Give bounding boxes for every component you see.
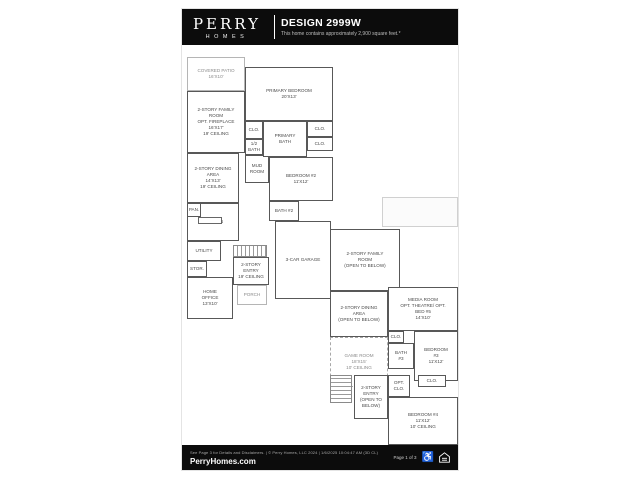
brand-sub: HOMES xyxy=(186,34,268,40)
website-link[interactable]: PerryHomes.com xyxy=(190,457,378,466)
brand-name: PERRY xyxy=(186,15,268,33)
bedroom-3-label: BEDROOM #3 11'x12' xyxy=(423,346,449,367)
screenshot-canvas: { "header": { "brand": { "name": "PERRY"… xyxy=(0,0,640,480)
design-subtitle: This home contains approximately 2,900 s… xyxy=(281,31,401,37)
disclaimer-text: See Page 3 for Details and Disclaimers. … xyxy=(190,450,378,455)
header-bar: PERRY HOMES DESIGN 2999W This home conta… xyxy=(182,9,458,45)
roof-area xyxy=(382,197,458,227)
family-room-open-label: 2-STORY FAMILY ROOM (OPEN TO BELOW) xyxy=(343,250,386,271)
bath-3-label: BATH #3 xyxy=(394,349,408,363)
header-divider xyxy=(274,15,275,39)
bedroom-4-label: BEDROOM #4 11'x12' 10' Ceiling xyxy=(407,411,439,432)
second-floor-plan: 2-STORY FAMILY ROOM (OPEN TO BELOW)2-STO… xyxy=(182,45,458,445)
footer-bar: See Page 3 for Details and Disclaimers. … xyxy=(182,445,458,470)
family-room-open: 2-STORY FAMILY ROOM (OPEN TO BELOW) xyxy=(330,229,400,291)
closet-5: CLO. xyxy=(418,375,446,387)
page-info: Page 1 of 3 xyxy=(394,455,417,460)
dining-area-open: 2-STORY DINING AREA (OPEN TO BELOW) xyxy=(330,291,388,337)
design-info: DESIGN 2999W This home contains approxim… xyxy=(281,17,401,37)
media-room-label: MEDIA ROOM OPT. THEATRE/ OPT. BED #5 14'… xyxy=(399,296,446,323)
bedroom-4: BEDROOM #4 11'x12' 10' Ceiling xyxy=(388,397,458,445)
opt-closet: OPT. CLO. xyxy=(388,375,410,397)
equal-housing-icon xyxy=(439,452,450,463)
stairs-second-floor xyxy=(330,375,352,403)
footer-left: See Page 3 for Details and Disclaimers. … xyxy=(190,450,378,466)
perry-homes-logo: PERRY HOMES xyxy=(186,15,268,40)
entry-open-label: 2-STORY ENTRY (OPEN TO BELOW) xyxy=(359,384,383,411)
floorplan-drawing: COVERED PATIO 16'x10'2-STORY FAMILY ROOM… xyxy=(182,45,458,445)
design-title: DESIGN 2999W xyxy=(281,17,401,29)
floorplan-page: PERRY HOMES DESIGN 2999W This home conta… xyxy=(181,8,459,471)
accessibility-icon: ♿ xyxy=(422,453,434,463)
game-room-label: GAME ROOM 18'x15' 10' Ceiling xyxy=(343,352,374,373)
closet-4-label: CLO. xyxy=(390,333,403,341)
bedroom-3: BEDROOM #3 11'x12' xyxy=(414,331,458,381)
media-room: MEDIA ROOM OPT. THEATRE/ OPT. BED #5 14'… xyxy=(388,287,458,331)
footer-right: Page 1 of 3 ♿ xyxy=(394,452,450,463)
dining-area-open-label: 2-STORY DINING AREA (OPEN TO BELOW) xyxy=(337,304,380,325)
entry-open: 2-STORY ENTRY (OPEN TO BELOW) xyxy=(354,375,388,419)
closet-4: CLO. xyxy=(388,331,404,343)
bath-3: BATH #3 xyxy=(388,343,414,369)
closet-5-label: CLO. xyxy=(426,377,439,385)
opt-closet-label: OPT. CLO. xyxy=(393,379,406,393)
